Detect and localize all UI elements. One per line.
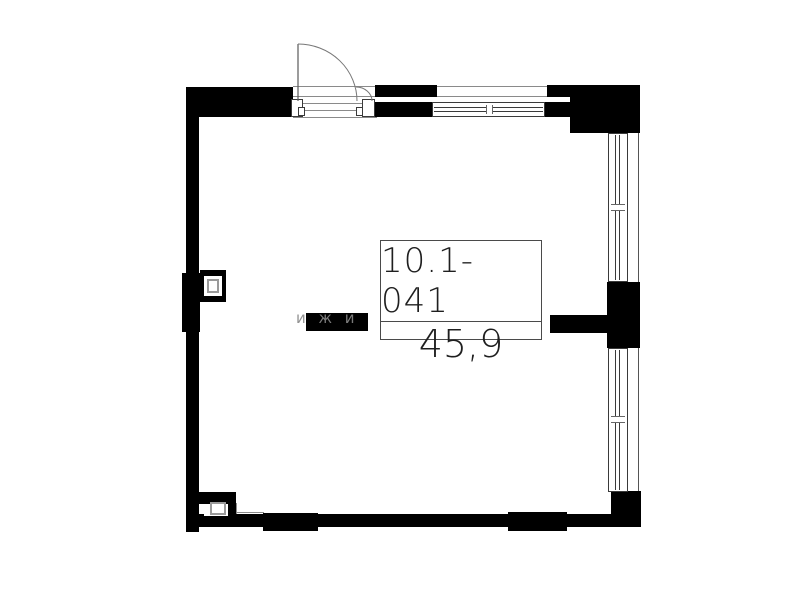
unit-area: 45,9 xyxy=(381,322,541,366)
door-swing-arc-small xyxy=(356,87,372,101)
floor-plan-canvas: 10.1-041 45,9 и ж и xyxy=(0,0,800,600)
unit-number: 10.1-041 xyxy=(381,241,541,322)
door-swing-arc xyxy=(298,44,357,101)
unit-label-box[interactable]: 10.1-041 45,9 xyxy=(380,240,542,340)
watermark-text: и ж и xyxy=(296,309,359,327)
